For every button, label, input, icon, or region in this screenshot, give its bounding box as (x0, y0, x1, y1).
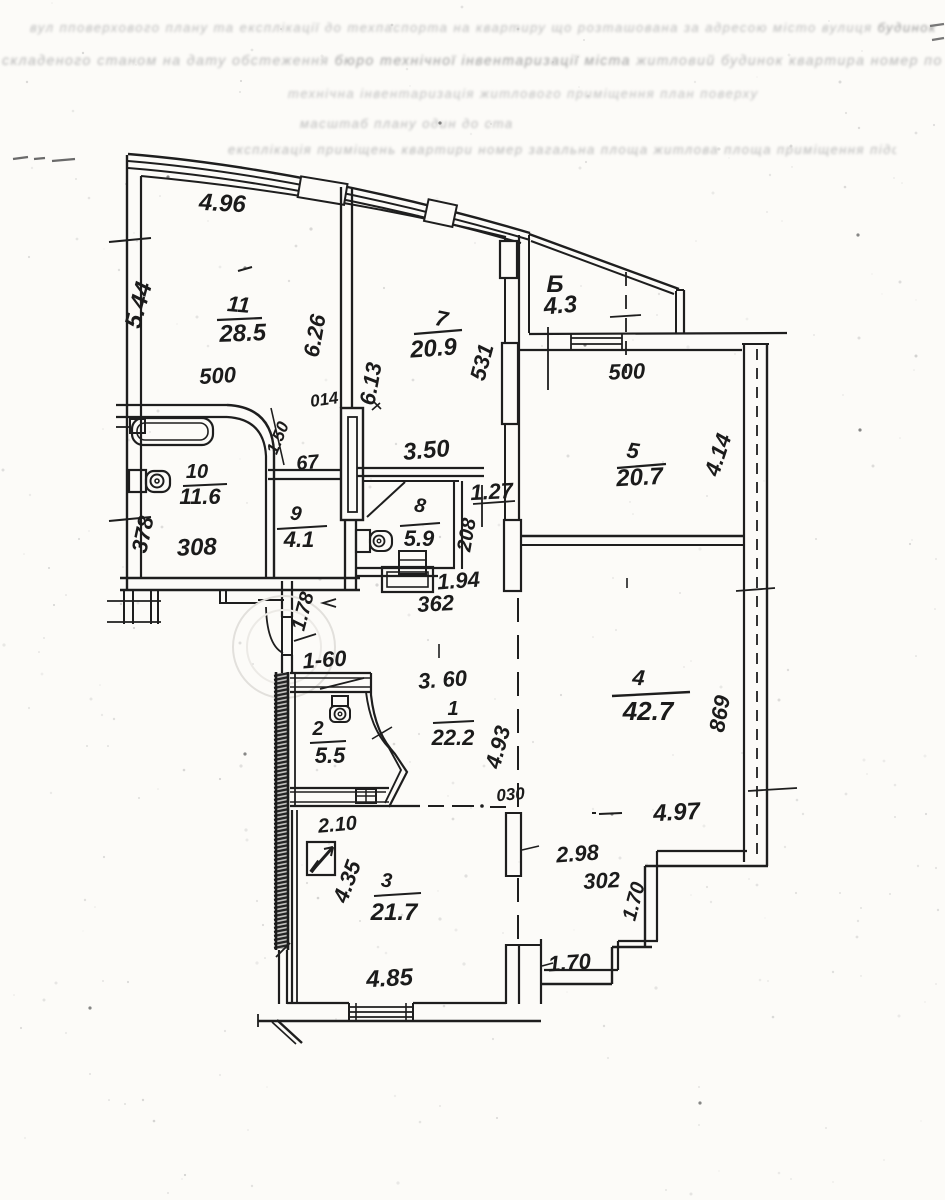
svg-text:2.98: 2.98 (554, 840, 600, 868)
svg-text:2.10: 2.10 (316, 812, 358, 837)
svg-text:42.7: 42.7 (622, 696, 675, 726)
svg-text:030: 030 (496, 784, 526, 805)
svg-text:20.7: 20.7 (615, 463, 666, 493)
svg-text:1.27: 1.27 (470, 478, 516, 505)
svg-text:8: 8 (413, 494, 429, 518)
svg-text:2: 2 (311, 718, 323, 740)
svg-text:302: 302 (583, 867, 622, 894)
svg-text:21.7: 21.7 (370, 899, 419, 926)
svg-text:500: 500 (608, 358, 646, 384)
svg-text:10: 10 (186, 461, 208, 483)
svg-text:531: 531 (465, 341, 499, 383)
svg-text:20.9: 20.9 (408, 333, 458, 363)
svg-text:500: 500 (199, 362, 238, 389)
svg-text:11: 11 (226, 291, 251, 318)
svg-text:5.9: 5.9 (404, 526, 435, 551)
svg-text:4.14: 4.14 (699, 430, 736, 479)
svg-text:6.13: 6.13 (355, 360, 387, 407)
svg-text:5.5: 5.5 (315, 743, 346, 768)
svg-text:362: 362 (417, 590, 456, 617)
svg-text:4.35: 4.35 (328, 856, 367, 906)
svg-text:7: 7 (433, 305, 452, 332)
svg-text:5: 5 (625, 437, 641, 464)
svg-text:3.50: 3.50 (402, 435, 452, 466)
svg-text:4.97: 4.97 (652, 798, 703, 828)
svg-text:11.6: 11.6 (179, 484, 221, 509)
svg-text:1.70: 1.70 (547, 949, 592, 977)
svg-text:4.3: 4.3 (542, 291, 579, 321)
svg-text:9: 9 (289, 502, 304, 525)
svg-text:5.44: 5.44 (120, 279, 158, 331)
svg-text:308: 308 (176, 533, 218, 561)
svg-text:6.26: 6.26 (299, 312, 331, 359)
svg-text:014: 014 (309, 388, 340, 411)
svg-text:208: 208 (453, 516, 481, 555)
svg-text:1: 1 (447, 698, 458, 720)
svg-text:28.5: 28.5 (218, 319, 267, 348)
svg-text:4.93: 4.93 (480, 723, 515, 772)
svg-text:1-60: 1-60 (302, 645, 348, 673)
svg-text:3. 60: 3. 60 (417, 665, 468, 693)
svg-text:4: 4 (630, 664, 645, 690)
svg-text:22.2: 22.2 (431, 725, 476, 750)
svg-text:3: 3 (380, 870, 393, 893)
svg-text:4.85: 4.85 (365, 964, 415, 993)
svg-text:4.96: 4.96 (197, 189, 247, 218)
svg-text:869: 869 (704, 693, 735, 734)
svg-text:4.1: 4.1 (283, 527, 315, 552)
svg-text:67: 67 (295, 451, 320, 475)
